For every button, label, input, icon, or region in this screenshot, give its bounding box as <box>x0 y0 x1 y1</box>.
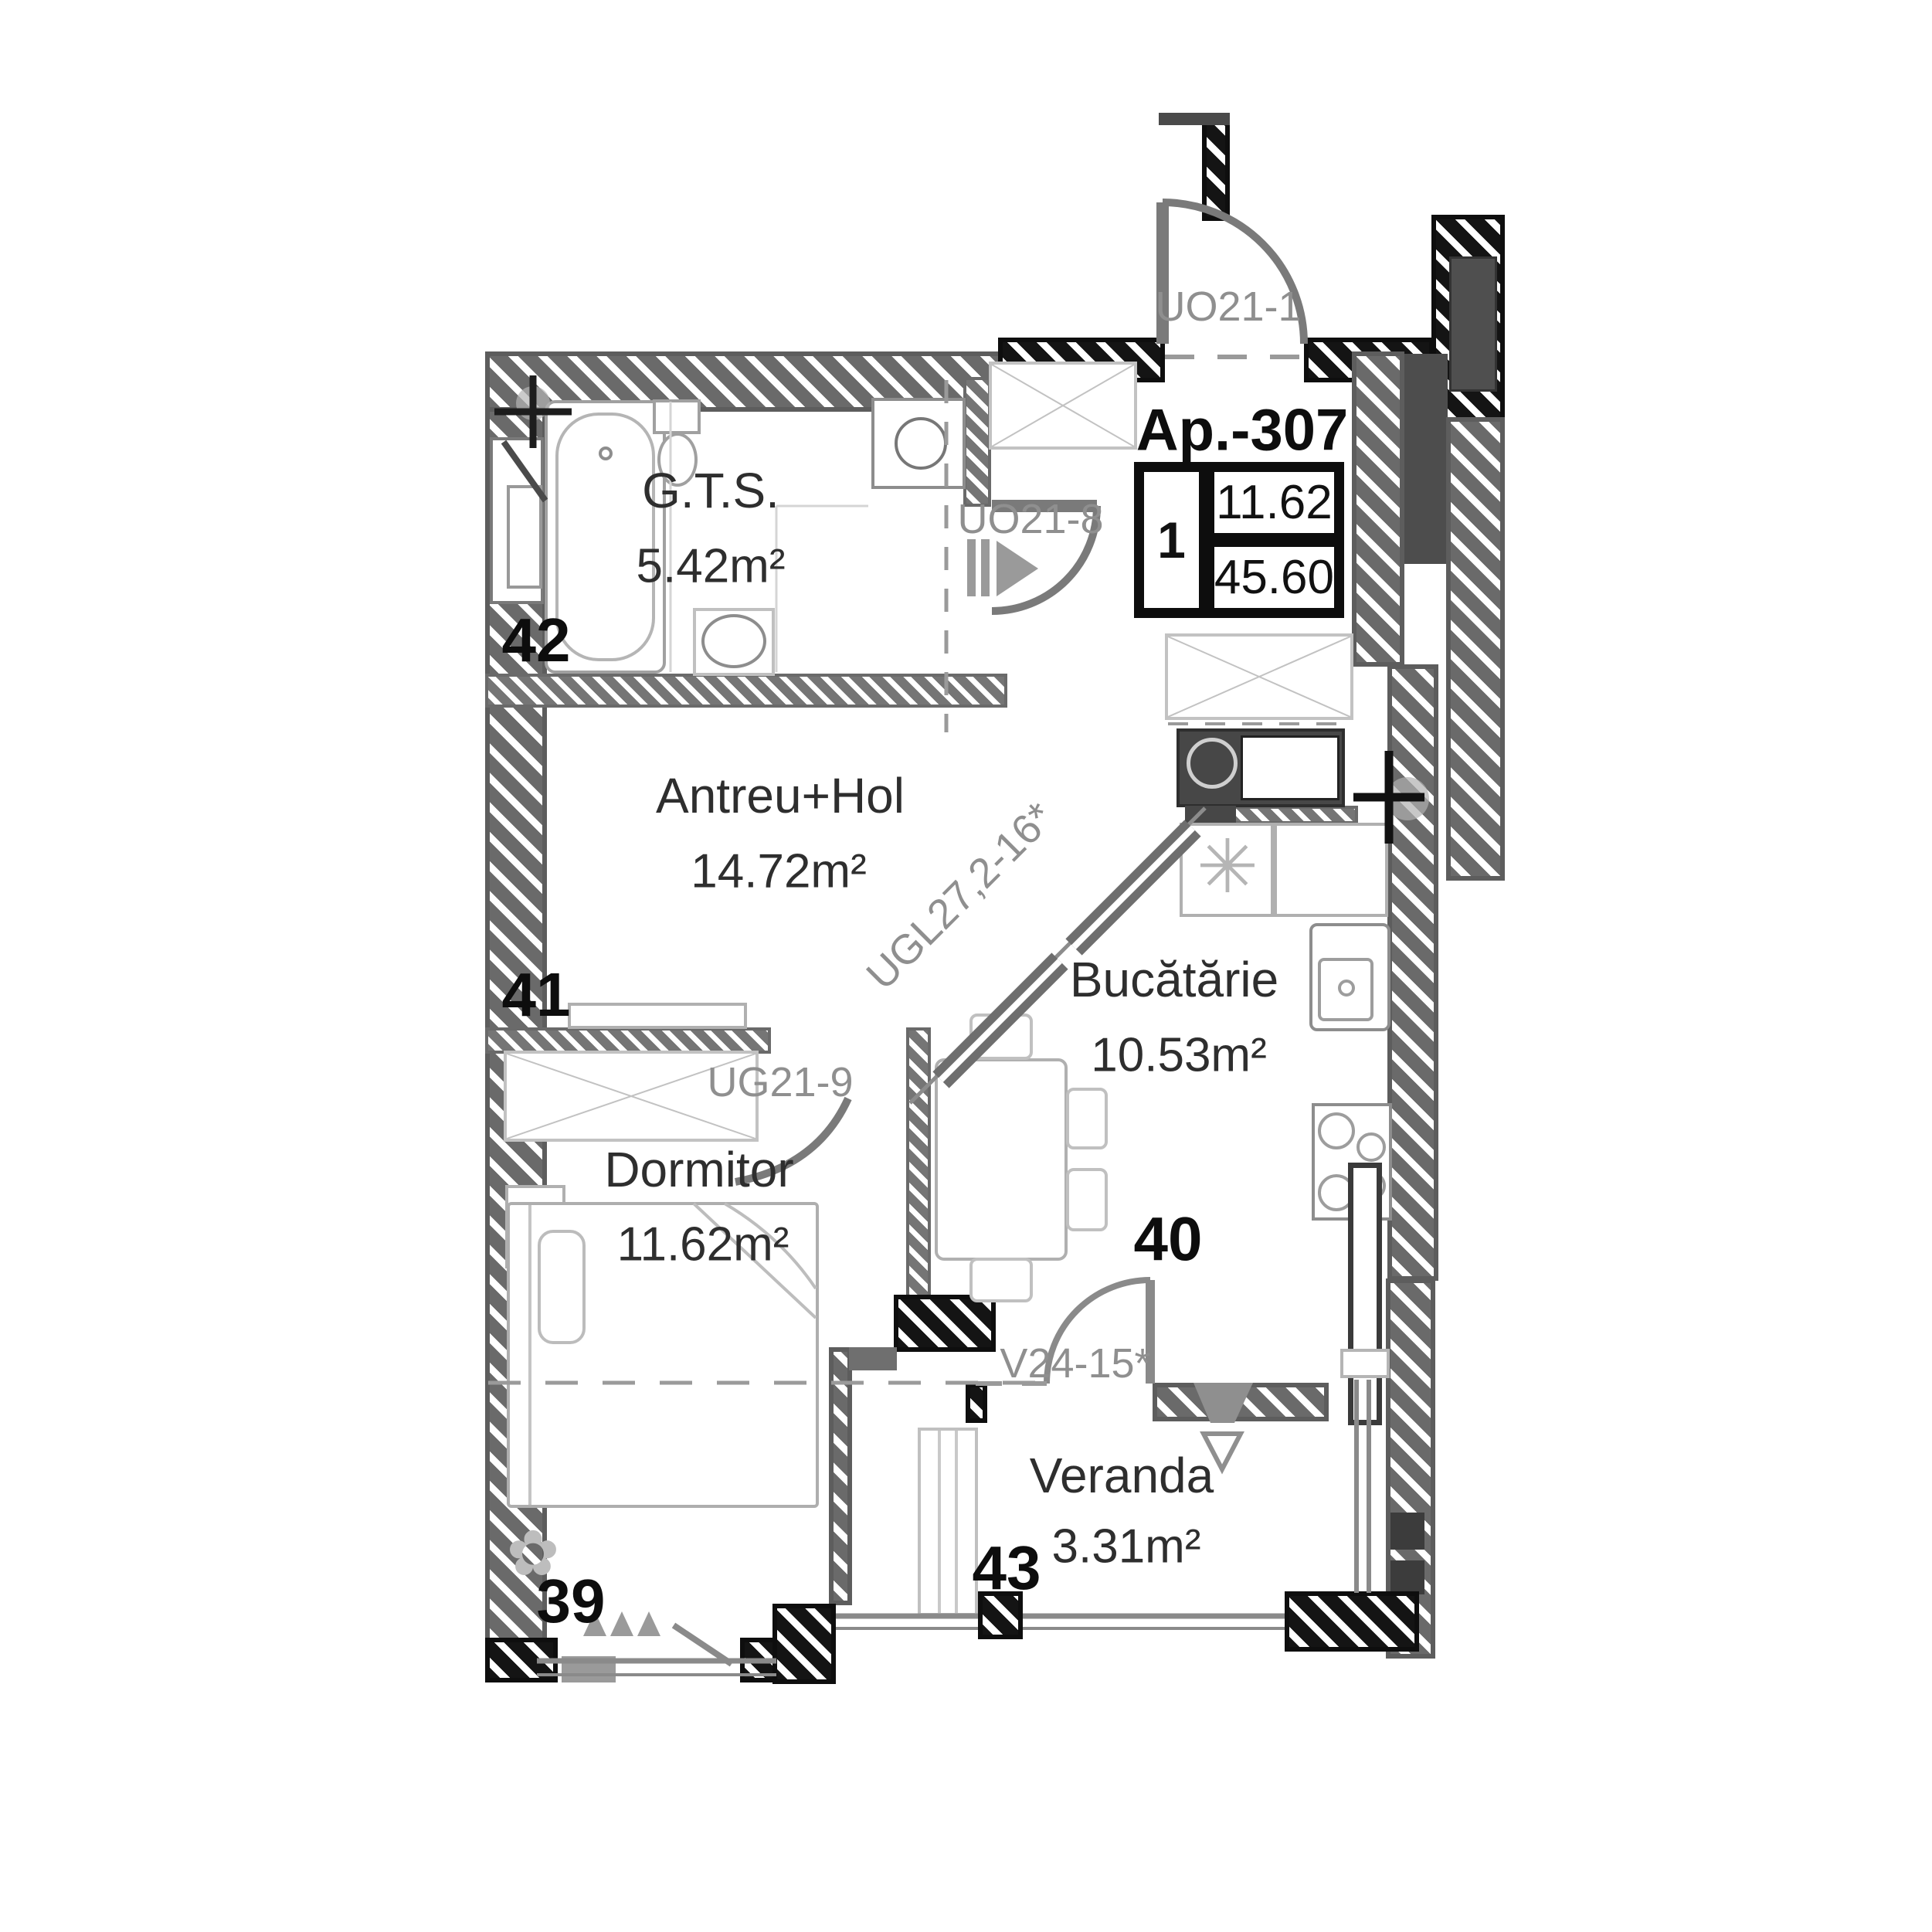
room-label-gts: G.T.S. <box>642 462 779 519</box>
room-area-gts: 5.42m² <box>637 539 786 594</box>
room-area-bucatarie: 10.53m² <box>1091 1028 1266 1083</box>
zone-label-41: 41 <box>502 959 571 1031</box>
living-area-value: 11.62 <box>1210 468 1338 537</box>
plan-annotations <box>0 0 1932 1932</box>
room-label-antreu: Antreu+Hol <box>656 767 905 824</box>
niche-shutter-line <box>504 442 545 501</box>
room-area-dormitor: 11.62m² <box>617 1217 789 1272</box>
utility-marker-kitchen <box>1353 751 1429 844</box>
door-code-ug21-9: UG21-9 <box>707 1058 853 1106</box>
zone-label-42: 42 <box>502 605 571 676</box>
zone-label-39: 39 <box>537 1566 606 1637</box>
entry-arrow-icon <box>967 539 1038 596</box>
window-glazing <box>537 1380 1369 1675</box>
zone-label-43: 43 <box>973 1533 1041 1604</box>
apartment-title: Ap.-307 <box>1136 397 1349 464</box>
door-code-v24-15: V24-15* <box>1000 1339 1150 1387</box>
room-label-veranda: Veranda <box>1030 1447 1214 1504</box>
room-label-bucatarie: Bucătărie <box>1070 951 1278 1008</box>
total-area-value: 45.60 <box>1210 543 1338 612</box>
door-code-uo21-8: UO21-8 <box>957 495 1103 543</box>
room-label-dormitor: Dormitor <box>604 1141 793 1198</box>
apartment-info-box: 1 11.62 45.60 <box>1134 462 1344 618</box>
door-swing-icon-uo21-1 <box>1163 202 1304 357</box>
floor-plan: ✳ ✿ <box>0 0 1932 1932</box>
utility-marker-bathroom <box>494 375 572 448</box>
door-code-uo21-1: UO21-1 <box>1155 283 1301 331</box>
room-area-veranda: 3.31m² <box>1052 1519 1201 1574</box>
zone-label-40: 40 <box>1134 1204 1203 1275</box>
rooms-count: 1 <box>1140 468 1203 612</box>
room-area-antreu: 14.72m² <box>691 844 866 899</box>
bathroom-divider-lines <box>671 402 868 672</box>
